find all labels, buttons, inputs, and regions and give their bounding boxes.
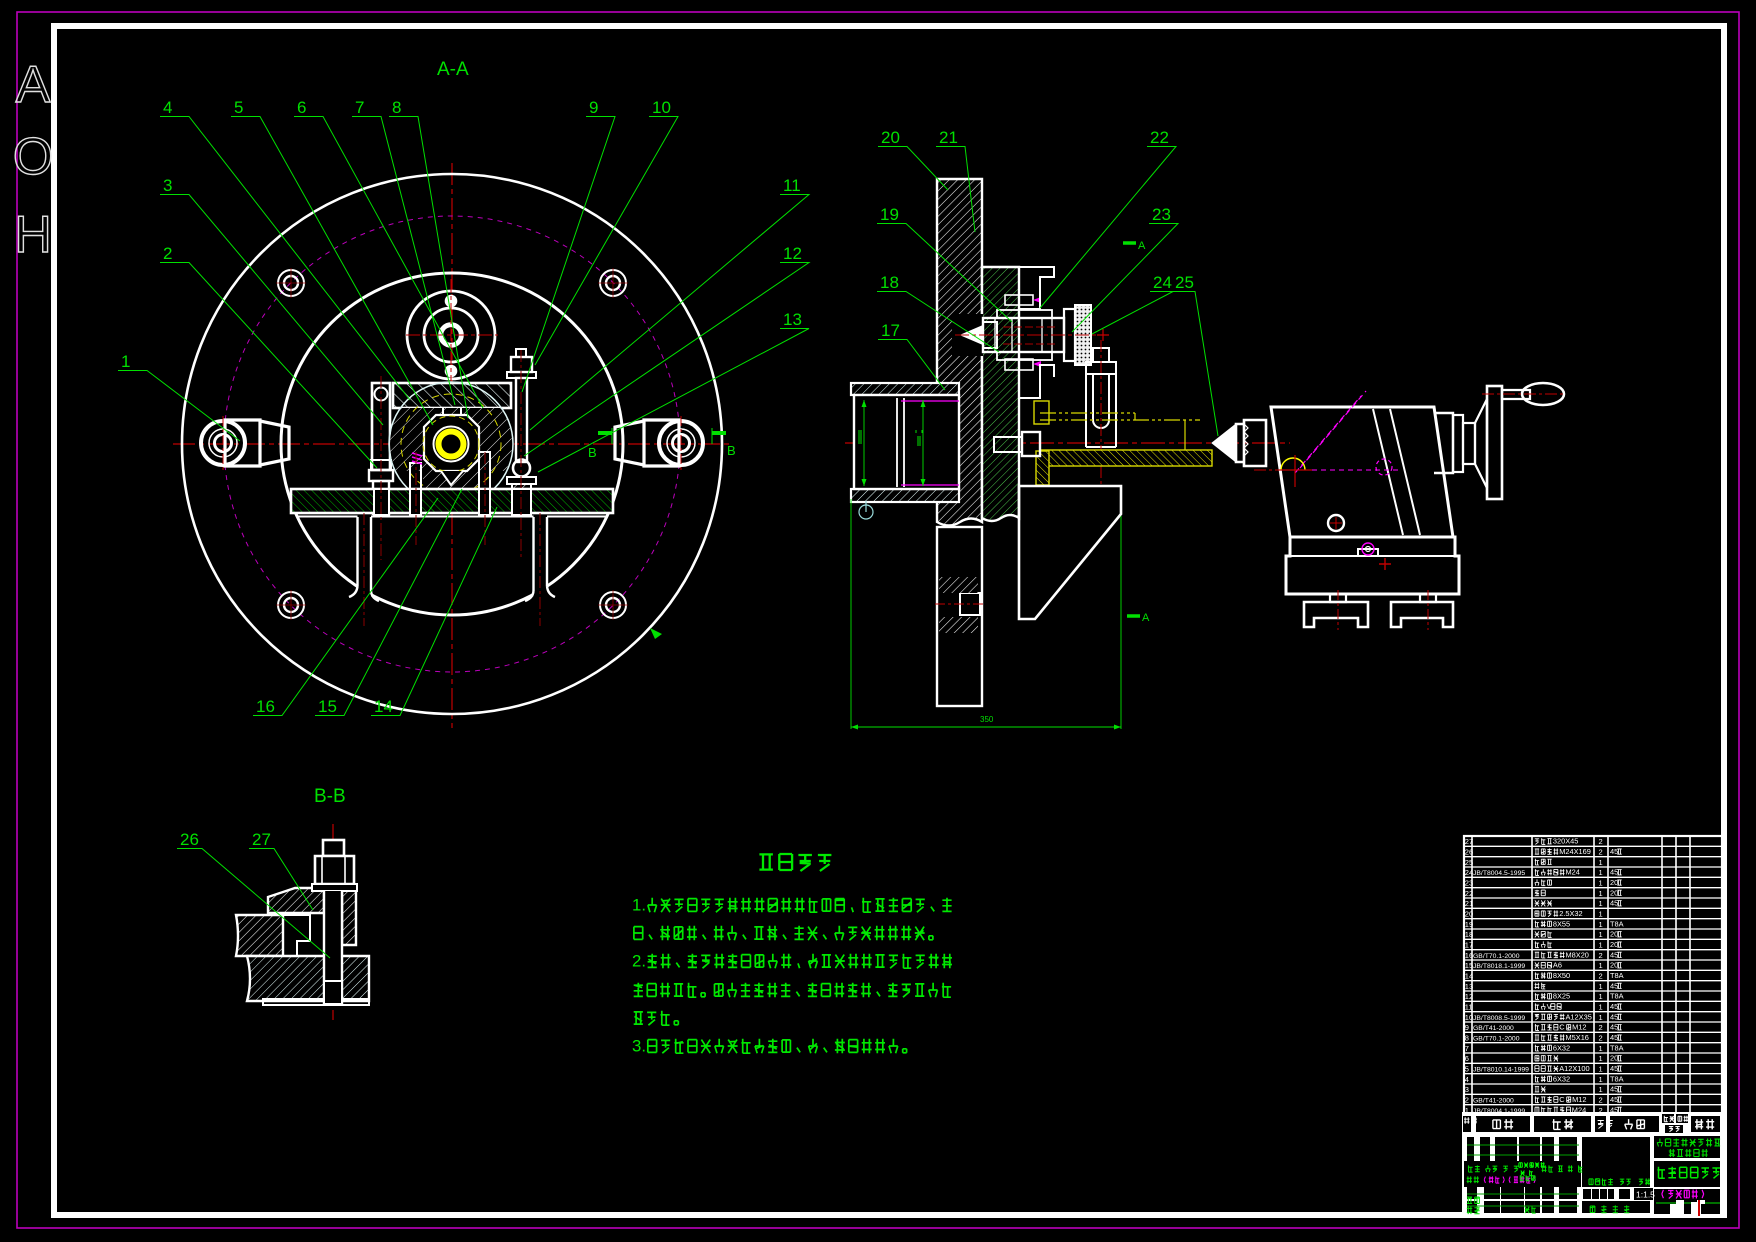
svg-text:13: 13 bbox=[1465, 982, 1473, 991]
svg-text:24: 24 bbox=[1153, 273, 1172, 292]
svg-text:A-A: A-A bbox=[437, 59, 469, 80]
svg-text:45: 45 bbox=[1610, 981, 1618, 990]
svg-text:1: 1 bbox=[1465, 1106, 1469, 1115]
svg-text:2: 2 bbox=[1599, 1106, 1603, 1115]
svg-text:T8A: T8A bbox=[1610, 1043, 1624, 1052]
svg-text:3: 3 bbox=[163, 176, 172, 195]
svg-text:1: 1 bbox=[1599, 899, 1603, 908]
svg-text:19: 19 bbox=[880, 205, 899, 224]
svg-text:1.: 1. bbox=[632, 896, 646, 915]
svg-text:2: 2 bbox=[1599, 951, 1603, 960]
svg-text:8X55: 8X55 bbox=[1553, 919, 1570, 928]
svg-text:23: 23 bbox=[1152, 205, 1171, 224]
svg-text:20: 20 bbox=[1610, 1054, 1618, 1063]
svg-text:A6: A6 bbox=[1553, 961, 1562, 970]
svg-text:V: V bbox=[1547, 1002, 1552, 1011]
svg-text:H: H bbox=[14, 206, 52, 264]
svg-text:3.: 3. bbox=[632, 1037, 646, 1056]
svg-text:22: 22 bbox=[1150, 128, 1169, 147]
svg-text:45: 45 bbox=[1610, 1002, 1618, 1011]
svg-text:A12X100: A12X100 bbox=[1559, 1064, 1589, 1073]
svg-text:M12: M12 bbox=[1572, 1023, 1586, 1032]
svg-text:1: 1 bbox=[1599, 930, 1603, 939]
svg-text:9: 9 bbox=[1465, 1023, 1469, 1032]
svg-text:27: 27 bbox=[1465, 837, 1473, 846]
svg-text:B: B bbox=[588, 445, 597, 460]
svg-text:17: 17 bbox=[881, 321, 900, 340]
svg-text:1: 1 bbox=[1599, 1075, 1603, 1084]
svg-text:1: 1 bbox=[1599, 868, 1603, 877]
svg-text:20: 20 bbox=[1465, 910, 1473, 919]
svg-text:M24: M24 bbox=[1572, 1105, 1586, 1114]
svg-text:8X25: 8X25 bbox=[1553, 992, 1570, 1001]
svg-text:2: 2 bbox=[1599, 848, 1603, 857]
svg-text:18: 18 bbox=[1465, 930, 1473, 939]
svg-text:5: 5 bbox=[1465, 1065, 1469, 1074]
svg-text:27: 27 bbox=[252, 830, 271, 849]
svg-text:M8X20: M8X20 bbox=[1566, 950, 1589, 959]
svg-text:4: 4 bbox=[163, 98, 172, 117]
svg-text:1: 1 bbox=[1599, 879, 1603, 888]
svg-text:A: A bbox=[16, 56, 51, 114]
svg-text:GB/T70.1-2000: GB/T70.1-2000 bbox=[1473, 1036, 1520, 1043]
svg-text:45: 45 bbox=[1610, 950, 1618, 959]
svg-text:320X45: 320X45 bbox=[1553, 837, 1578, 846]
svg-text:16: 16 bbox=[256, 697, 275, 716]
svg-text:18: 18 bbox=[880, 273, 899, 292]
svg-text:M24: M24 bbox=[1566, 868, 1580, 877]
svg-text:C: C bbox=[1559, 1023, 1565, 1032]
svg-text:2: 2 bbox=[1599, 1034, 1603, 1043]
svg-text:19: 19 bbox=[1465, 920, 1473, 929]
svg-text:45: 45 bbox=[1610, 1085, 1618, 1094]
svg-text:2: 2 bbox=[1465, 1096, 1469, 1105]
svg-text:11: 11 bbox=[783, 176, 801, 195]
svg-text:1: 1 bbox=[1599, 889, 1603, 898]
svg-text:8X50: 8X50 bbox=[1553, 971, 1570, 980]
svg-text:JB/T8008.5-1999: JB/T8008.5-1999 bbox=[1473, 1015, 1525, 1022]
svg-text:10: 10 bbox=[652, 98, 671, 117]
svg-text:45: 45 bbox=[1610, 847, 1618, 856]
svg-text:1: 1 bbox=[1599, 1044, 1603, 1053]
svg-text:14: 14 bbox=[1465, 972, 1473, 981]
svg-text:1: 1 bbox=[1599, 910, 1603, 919]
svg-text:26: 26 bbox=[180, 830, 199, 849]
svg-text:1: 1 bbox=[1599, 992, 1603, 1001]
svg-text:A12X35: A12X35 bbox=[1566, 1012, 1592, 1021]
svg-text:GB/T41-2000: GB/T41-2000 bbox=[1473, 1025, 1514, 1032]
svg-text:T8A: T8A bbox=[1610, 992, 1624, 1001]
svg-text:45: 45 bbox=[1610, 1064, 1618, 1073]
svg-text:1: 1 bbox=[1599, 1065, 1603, 1074]
svg-text:O: O bbox=[13, 128, 53, 186]
svg-text:A: A bbox=[1138, 240, 1146, 252]
svg-text:JB/T8018.1-1999: JB/T8018.1-1999 bbox=[1473, 963, 1525, 970]
svg-text:2: 2 bbox=[1599, 1023, 1603, 1032]
svg-text:25: 25 bbox=[1465, 858, 1473, 867]
svg-text:C: C bbox=[1559, 1095, 1565, 1104]
svg-text:16: 16 bbox=[1465, 951, 1473, 960]
svg-text:45: 45 bbox=[1610, 899, 1618, 908]
svg-text:7: 7 bbox=[355, 98, 364, 117]
svg-text:7: 7 bbox=[1465, 1044, 1469, 1053]
svg-text:1: 1 bbox=[121, 352, 130, 371]
svg-text:1: 1 bbox=[1599, 1085, 1603, 1094]
svg-text:15: 15 bbox=[1465, 961, 1473, 970]
svg-text:21: 21 bbox=[939, 128, 958, 147]
svg-text:13: 13 bbox=[783, 310, 802, 329]
svg-text:1: 1 bbox=[1599, 1013, 1603, 1022]
svg-text:21: 21 bbox=[1465, 899, 1473, 908]
svg-text:1: 1 bbox=[1599, 961, 1603, 970]
svg-text:1: 1 bbox=[1599, 982, 1603, 991]
svg-text:JB/T8004.5-1995: JB/T8004.5-1995 bbox=[1473, 870, 1525, 877]
svg-text:45: 45 bbox=[1610, 1012, 1618, 1021]
svg-text:1: 1 bbox=[1599, 1003, 1603, 1012]
svg-text:1: 1 bbox=[1599, 858, 1603, 867]
svg-text:1: 1 bbox=[1599, 941, 1603, 950]
svg-text:3: 3 bbox=[1465, 1085, 1469, 1094]
svg-text:8: 8 bbox=[1465, 1034, 1469, 1043]
svg-text:M24X169: M24X169 bbox=[1559, 847, 1591, 856]
svg-text:T8A: T8A bbox=[1610, 919, 1624, 928]
svg-text:M5X16: M5X16 bbox=[1566, 1033, 1589, 1042]
svg-text:2: 2 bbox=[1599, 837, 1603, 846]
svg-text:5: 5 bbox=[234, 98, 243, 117]
svg-text:6: 6 bbox=[297, 98, 306, 117]
svg-text:2: 2 bbox=[1599, 1096, 1603, 1105]
svg-text:1:1.5: 1:1.5 bbox=[1636, 1190, 1655, 1200]
svg-text:20: 20 bbox=[1610, 930, 1618, 939]
svg-text:45: 45 bbox=[1610, 1095, 1618, 1104]
svg-text:20: 20 bbox=[1610, 888, 1618, 897]
svg-text:T8A: T8A bbox=[1610, 1074, 1624, 1083]
svg-text:2: 2 bbox=[163, 244, 172, 263]
svg-text:24: 24 bbox=[1465, 868, 1473, 877]
svg-text:20: 20 bbox=[1610, 961, 1618, 970]
svg-text:9: 9 bbox=[589, 98, 598, 117]
svg-text:26: 26 bbox=[1465, 848, 1473, 857]
svg-text:12: 12 bbox=[783, 244, 802, 263]
svg-text:GB/T70.1-2000: GB/T70.1-2000 bbox=[1473, 953, 1520, 960]
svg-text:6: 6 bbox=[1465, 1054, 1469, 1063]
svg-text:11: 11 bbox=[1465, 1003, 1473, 1012]
svg-text:45: 45 bbox=[1610, 1023, 1618, 1032]
svg-text:6X32: 6X32 bbox=[1553, 1043, 1570, 1052]
svg-text:25: 25 bbox=[1175, 273, 1194, 292]
svg-text:1: 1 bbox=[1599, 920, 1603, 929]
svg-text:B-B: B-B bbox=[314, 786, 346, 807]
svg-text:20: 20 bbox=[881, 128, 900, 147]
svg-text:6X32: 6X32 bbox=[1553, 1074, 1570, 1083]
svg-text:15: 15 bbox=[318, 697, 337, 716]
svg-text:350: 350 bbox=[980, 715, 994, 724]
svg-text:A: A bbox=[1142, 612, 1150, 624]
svg-text:45: 45 bbox=[1610, 1033, 1618, 1042]
svg-text:10: 10 bbox=[1465, 1013, 1473, 1022]
svg-text:14: 14 bbox=[374, 697, 393, 716]
svg-text:T8A: T8A bbox=[1610, 971, 1624, 980]
svg-text:45: 45 bbox=[1610, 1105, 1618, 1114]
svg-text:12: 12 bbox=[1465, 992, 1473, 1001]
svg-text:17: 17 bbox=[1465, 941, 1473, 950]
svg-text:45: 45 bbox=[1610, 868, 1618, 877]
svg-text:1: 1 bbox=[1599, 1054, 1603, 1063]
svg-text:8: 8 bbox=[392, 98, 401, 117]
svg-text:2.5X32: 2.5X32 bbox=[1559, 909, 1582, 918]
svg-text:4: 4 bbox=[1465, 1075, 1469, 1084]
svg-text:B: B bbox=[727, 443, 736, 458]
svg-text:22: 22 bbox=[1465, 889, 1473, 898]
svg-text:JB/T8004.1-1999: JB/T8004.1-1999 bbox=[1473, 1108, 1525, 1115]
svg-text:20: 20 bbox=[1610, 878, 1618, 887]
svg-text:GB/T41-2000: GB/T41-2000 bbox=[1473, 1098, 1514, 1105]
svg-text:M12: M12 bbox=[1572, 1095, 1586, 1104]
svg-text:23: 23 bbox=[1465, 879, 1473, 888]
svg-text:20: 20 bbox=[1610, 940, 1618, 949]
svg-text:2: 2 bbox=[1599, 972, 1603, 981]
svg-text:JB/T8010.14-1999: JB/T8010.14-1999 bbox=[1473, 1067, 1529, 1074]
svg-text:2.: 2. bbox=[632, 952, 646, 971]
